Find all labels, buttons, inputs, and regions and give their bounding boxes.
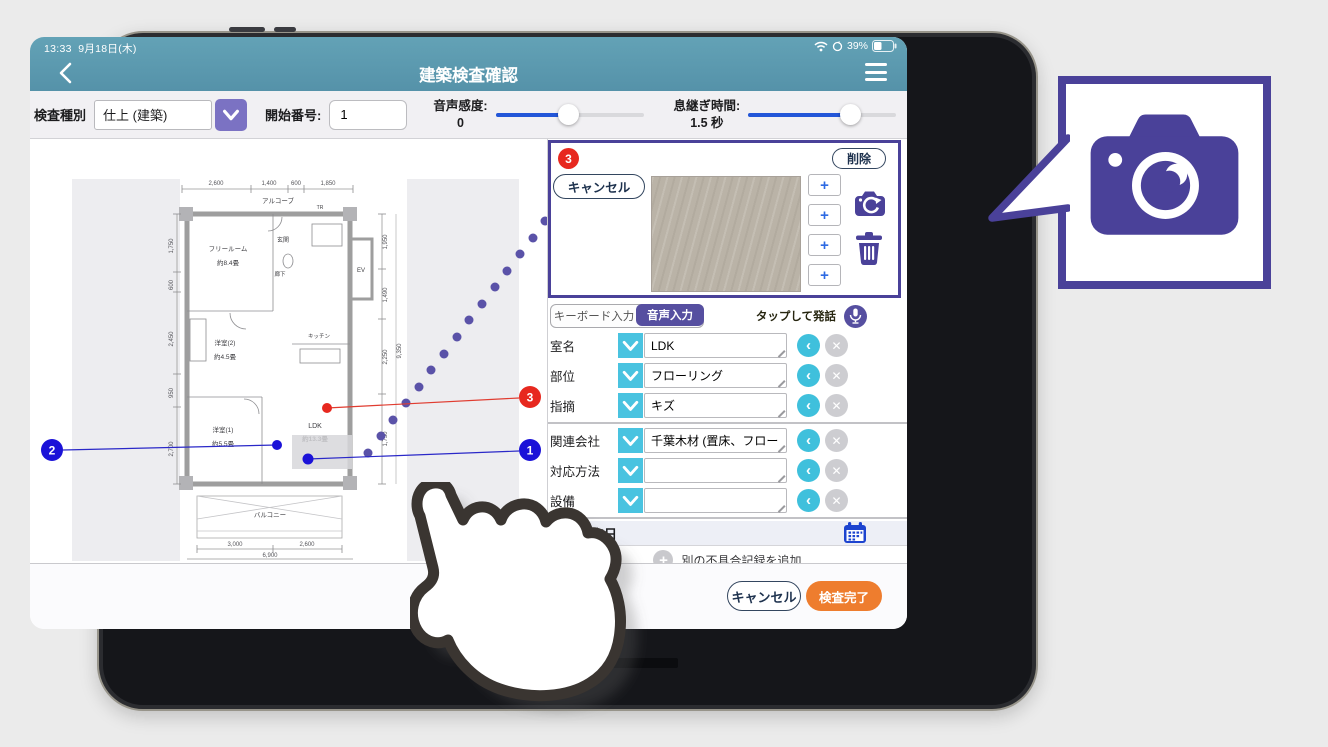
add-photo-button[interactable]: +	[808, 264, 841, 286]
undo-chevron-icon[interactable]: ‹	[797, 394, 820, 417]
svg-text:2: 2	[49, 444, 56, 458]
undo-chevron-icon[interactable]: ‹	[797, 364, 820, 387]
response-input[interactable]	[644, 458, 787, 483]
plan-left-stripe	[72, 179, 180, 561]
field-row-part: 部位 ‹ ✕	[548, 362, 907, 389]
tap-highlight	[292, 435, 352, 469]
field-row-issue: 指摘 ‹ ✕	[548, 392, 907, 419]
voice-sensitivity-slider[interactable]	[496, 104, 644, 126]
svg-text:約4.5畳: 約4.5畳	[214, 352, 237, 361]
svg-text:9,350: 9,350	[397, 343, 403, 359]
svg-text:洋室(1): 洋室(1)	[213, 425, 234, 434]
svg-text:2,450: 2,450	[169, 331, 175, 347]
field-row-response: 対応方法 ‹ ✕	[548, 457, 907, 484]
svg-text:1,490: 1,490	[383, 287, 389, 303]
undo-chevron-icon[interactable]: ‹	[797, 459, 820, 482]
start-number-label: 開始番号:	[265, 105, 321, 124]
svg-text:2,250: 2,250	[383, 349, 389, 365]
hand-tap-cursor	[410, 482, 655, 727]
clear-x-icon[interactable]: ✕	[825, 364, 848, 387]
settings-toolbar: 検査種別 仕上 (建築) 開始番号: 音声感度: 0 息継	[30, 91, 907, 139]
input-mode-tabs: キーボード入力 音声入力 タップして発話	[550, 303, 907, 329]
trash-icon[interactable]	[854, 232, 884, 271]
svg-text:2,600: 2,600	[299, 542, 315, 548]
chevron-down-icon[interactable]	[618, 458, 643, 483]
defect-photo-thumbnail[interactable]	[651, 176, 801, 292]
breath-time-value: 1.5 秒	[690, 116, 723, 130]
calendar-icon[interactable]	[843, 522, 867, 544]
undo-chevron-icon[interactable]: ‹	[797, 429, 820, 452]
svg-text:3: 3	[527, 391, 534, 405]
page-background: 13:33 9月18日(木) 39%	[0, 0, 1328, 747]
svg-text:2,600: 2,600	[208, 181, 224, 187]
wifi-icon	[814, 41, 828, 52]
svg-text:600: 600	[291, 181, 302, 187]
field-label: 関連会社	[548, 431, 618, 450]
svg-text:廊下: 廊下	[274, 270, 286, 278]
inspection-type-select[interactable]: 仕上 (建築)	[94, 99, 247, 131]
field-label: 部位	[548, 366, 618, 385]
voice-sensitivity-value: 0	[457, 116, 464, 130]
plan-room-labels: アルコーブ TR フリールーム 約8.4畳 玄関 廊下 EV 洋室(2) 約4.…	[209, 196, 365, 519]
camera-callout-box	[1058, 76, 1271, 289]
marker-dot-2[interactable]	[272, 440, 282, 450]
status-time: 13:33	[44, 43, 72, 55]
issue-input[interactable]	[644, 393, 787, 418]
field-label: 指摘	[548, 396, 618, 415]
breath-time-slider[interactable]	[748, 104, 896, 126]
svg-text:フリールーム: フリールーム	[209, 245, 248, 253]
battery-icon	[872, 40, 897, 52]
field-label: 室名	[548, 336, 618, 355]
svg-text:LDK: LDK	[308, 423, 322, 430]
delete-button[interactable]: 削除	[832, 148, 886, 169]
svg-text:TR: TR	[317, 205, 324, 211]
chevron-down-icon[interactable]	[215, 99, 247, 131]
clear-x-icon[interactable]: ✕	[825, 429, 848, 452]
chevron-down-icon[interactable]	[618, 333, 643, 358]
orientation-lock-icon	[832, 41, 843, 52]
cancel-button[interactable]: キャンセル	[727, 581, 801, 611]
room-name-input[interactable]	[644, 333, 787, 358]
add-photo-button[interactable]: +	[808, 174, 841, 196]
equipment-input[interactable]	[644, 488, 787, 513]
status-bar: 13:33 9月18日(木) 39%	[30, 39, 907, 55]
camera-icon	[1066, 84, 1263, 281]
voice-sensitivity-label: 音声感度: 0	[433, 98, 487, 131]
photo-add-column: + + + +	[808, 174, 841, 286]
chevron-down-icon[interactable]	[618, 393, 643, 418]
svg-text:バルコニー: バルコニー	[254, 511, 286, 519]
power-button	[274, 27, 296, 32]
photo-panel: 3 削除 キャンセル + + + +	[548, 140, 901, 298]
svg-text:キッチン: キッチン	[308, 333, 331, 340]
company-input[interactable]	[644, 428, 787, 453]
clear-x-icon[interactable]: ✕	[825, 394, 848, 417]
microphone-icon[interactable]	[844, 305, 867, 328]
svg-text:玄関: 玄関	[277, 236, 289, 244]
svg-text:6,900: 6,900	[262, 553, 278, 559]
status-time-date: 13:33 9月18日(木)	[44, 41, 137, 56]
app-bar: 建築検査確認	[30, 55, 907, 91]
marker-dot-1[interactable]	[303, 454, 314, 465]
part-input[interactable]	[644, 363, 787, 388]
camera-callout-tail	[986, 126, 1070, 228]
svg-text:3,000: 3,000	[227, 542, 243, 548]
chevron-down-icon[interactable]	[618, 428, 643, 453]
breath-time-label: 息継ぎ時間: 1.5 秒	[674, 98, 741, 131]
undo-chevron-icon[interactable]: ‹	[797, 489, 820, 512]
field-label: 対応方法	[548, 461, 618, 480]
field-row-company: 関連会社 ‹ ✕	[548, 427, 907, 454]
clear-x-icon[interactable]: ✕	[825, 489, 848, 512]
volume-button	[229, 27, 265, 32]
battery-percent: 39%	[847, 40, 868, 52]
svg-text:アルコーブ: アルコーブ	[262, 196, 294, 205]
hamburger-menu-icon[interactable]	[865, 63, 887, 81]
page-title: 建築検査確認	[30, 62, 907, 86]
inspection-type-label: 検査種別	[34, 105, 86, 124]
add-photo-button[interactable]: +	[808, 234, 841, 256]
svg-text:1,400: 1,400	[261, 181, 277, 187]
start-number-input[interactable]	[329, 100, 407, 130]
plus-icon: +	[653, 550, 673, 563]
tab-voice-input[interactable]: 音声入力	[636, 304, 704, 326]
svg-text:1,750: 1,750	[169, 238, 175, 254]
add-record-label: 別の不具合記録を追加	[681, 552, 801, 564]
svg-text:1,850: 1,850	[320, 181, 336, 187]
svg-text:600: 600	[169, 279, 175, 290]
section-divider	[548, 422, 907, 424]
clear-x-icon[interactable]: ✕	[825, 334, 848, 357]
field-row-room: 室名 ‹ ✕	[548, 332, 907, 359]
marker-badge-3[interactable]: 3	[519, 386, 541, 408]
top-bar: 13:33 9月18日(木) 39%	[30, 37, 907, 91]
svg-text:1: 1	[527, 444, 534, 458]
tab-keyboard-input[interactable]: キーボード入力	[551, 305, 637, 327]
marker-badge-2[interactable]: 2	[41, 439, 63, 461]
marker-badge-1[interactable]: 1	[519, 439, 541, 461]
svg-text:EV: EV	[357, 268, 365, 274]
add-photo-button[interactable]: +	[808, 204, 841, 226]
defect-number-badge: 3	[558, 148, 579, 169]
inspection-complete-button[interactable]: 検査完了	[806, 581, 882, 611]
tap-to-speak-label: タップして発話	[756, 308, 836, 324]
chevron-down-icon[interactable]	[618, 363, 643, 388]
svg-text:約8.4畳: 約8.4畳	[217, 258, 240, 267]
status-date: 9月18日(木)	[78, 43, 136, 55]
svg-text:洋室(2): 洋室(2)	[215, 338, 236, 347]
svg-text:1,950: 1,950	[383, 234, 389, 250]
camera-retake-icon[interactable]	[852, 188, 888, 223]
svg-text:2,700: 2,700	[169, 441, 175, 457]
svg-text:950: 950	[169, 387, 175, 398]
inspection-type-value: 仕上 (建築)	[94, 100, 212, 130]
undo-chevron-icon[interactable]: ‹	[797, 334, 820, 357]
clear-x-icon[interactable]: ✕	[825, 459, 848, 482]
photo-cancel-button[interactable]: キャンセル	[553, 174, 645, 199]
marker-dot-3[interactable]	[322, 403, 332, 413]
